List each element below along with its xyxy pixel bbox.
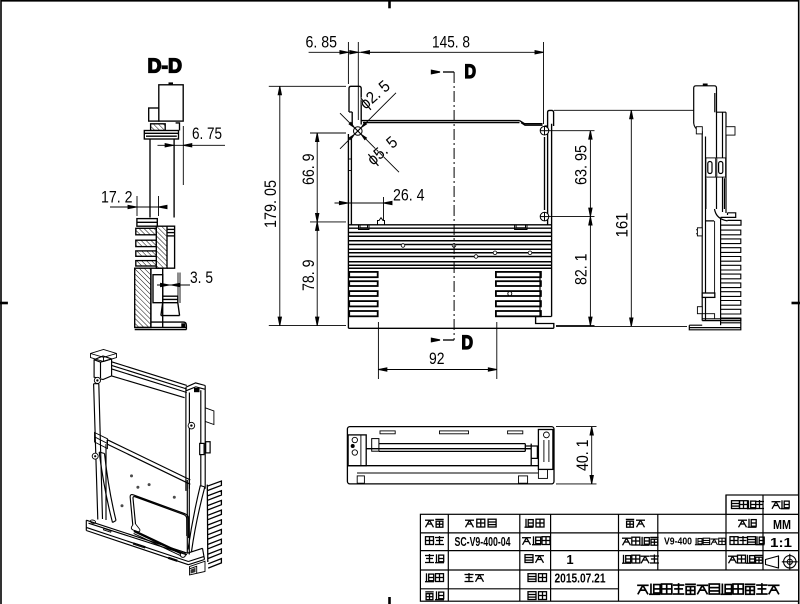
svg-text:D: D	[465, 62, 477, 83]
svg-text:161: 161	[614, 213, 632, 238]
svg-text:82. 1: 82. 1	[573, 254, 591, 286]
svg-text:26. 4: 26. 4	[393, 187, 425, 205]
svg-text:MM: MM	[773, 518, 791, 532]
svg-text:6. 85: 6. 85	[306, 33, 338, 51]
svg-text:78. 9: 78. 9	[300, 260, 318, 292]
svg-text:63. 95: 63. 95	[573, 145, 591, 185]
svg-text:D-D: D-D	[148, 56, 183, 78]
svg-text:SC-V9-400-04: SC-V9-400-04	[455, 534, 512, 549]
svg-text:40. 1: 40. 1	[574, 440, 592, 472]
svg-text:3. 5: 3. 5	[190, 269, 213, 287]
svg-text:17. 2: 17. 2	[101, 189, 133, 207]
svg-text:6. 75: 6. 75	[192, 125, 222, 143]
svg-text:66. 9: 66. 9	[300, 154, 318, 186]
svg-text:92: 92	[429, 350, 445, 368]
svg-text:145. 8: 145. 8	[432, 33, 470, 51]
svg-text:V9-400: V9-400	[664, 536, 692, 548]
svg-text:1: 1	[566, 552, 573, 567]
svg-text:179. 05: 179. 05	[262, 180, 280, 228]
svg-text:1:1: 1:1	[770, 535, 792, 550]
svg-text:D: D	[462, 333, 474, 354]
svg-text:2015.07.21: 2015.07.21	[555, 571, 606, 586]
